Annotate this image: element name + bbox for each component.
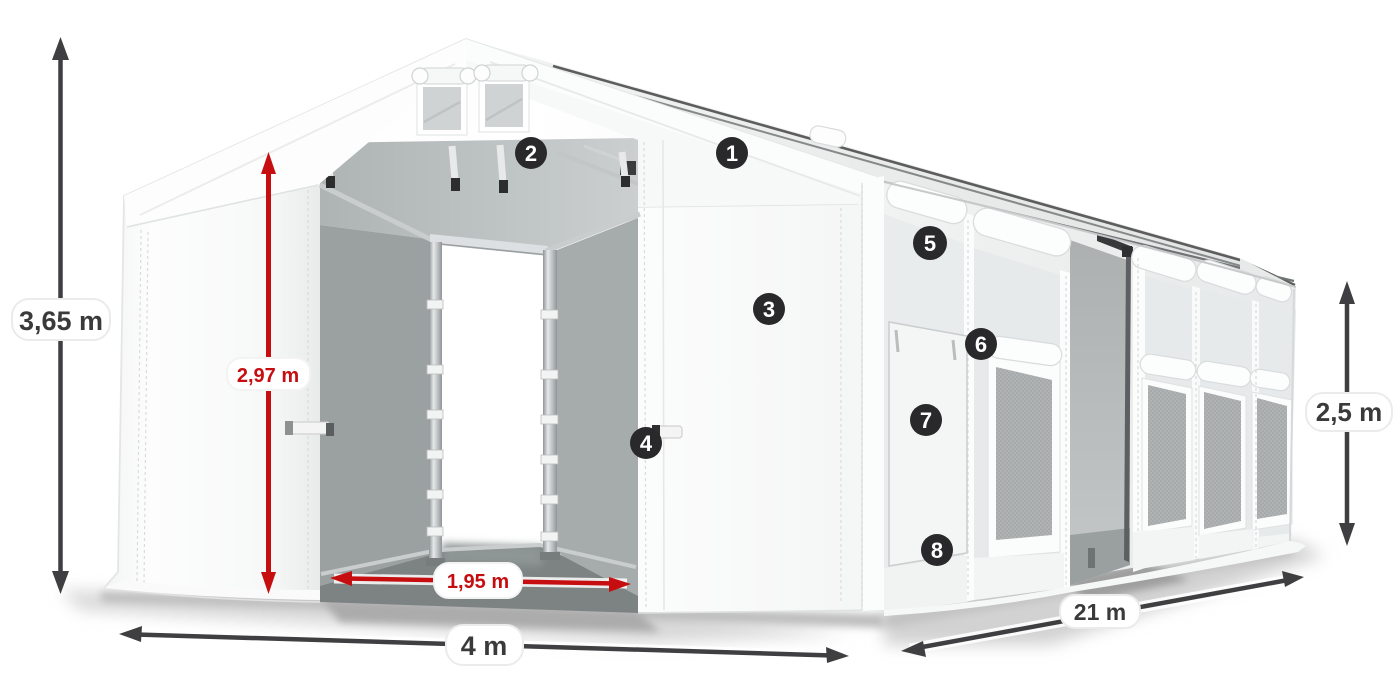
svg-text:6: 6: [975, 332, 987, 357]
svg-text:3: 3: [763, 297, 775, 322]
svg-text:3,65 m: 3,65 m: [19, 306, 103, 336]
svg-text:1: 1: [726, 141, 738, 166]
svg-text:7: 7: [920, 408, 932, 433]
svg-text:4 m: 4 m: [461, 631, 508, 661]
svg-text:2,5 m: 2,5 m: [1316, 397, 1383, 427]
svg-text:8: 8: [931, 538, 943, 563]
svg-text:5: 5: [924, 231, 936, 256]
svg-text:1,95 m: 1,95 m: [447, 571, 509, 593]
svg-text:21 m: 21 m: [1074, 599, 1126, 625]
svg-text:2: 2: [525, 141, 537, 166]
svg-text:2,97 m: 2,97 m: [237, 365, 299, 387]
svg-text:4: 4: [640, 431, 653, 456]
